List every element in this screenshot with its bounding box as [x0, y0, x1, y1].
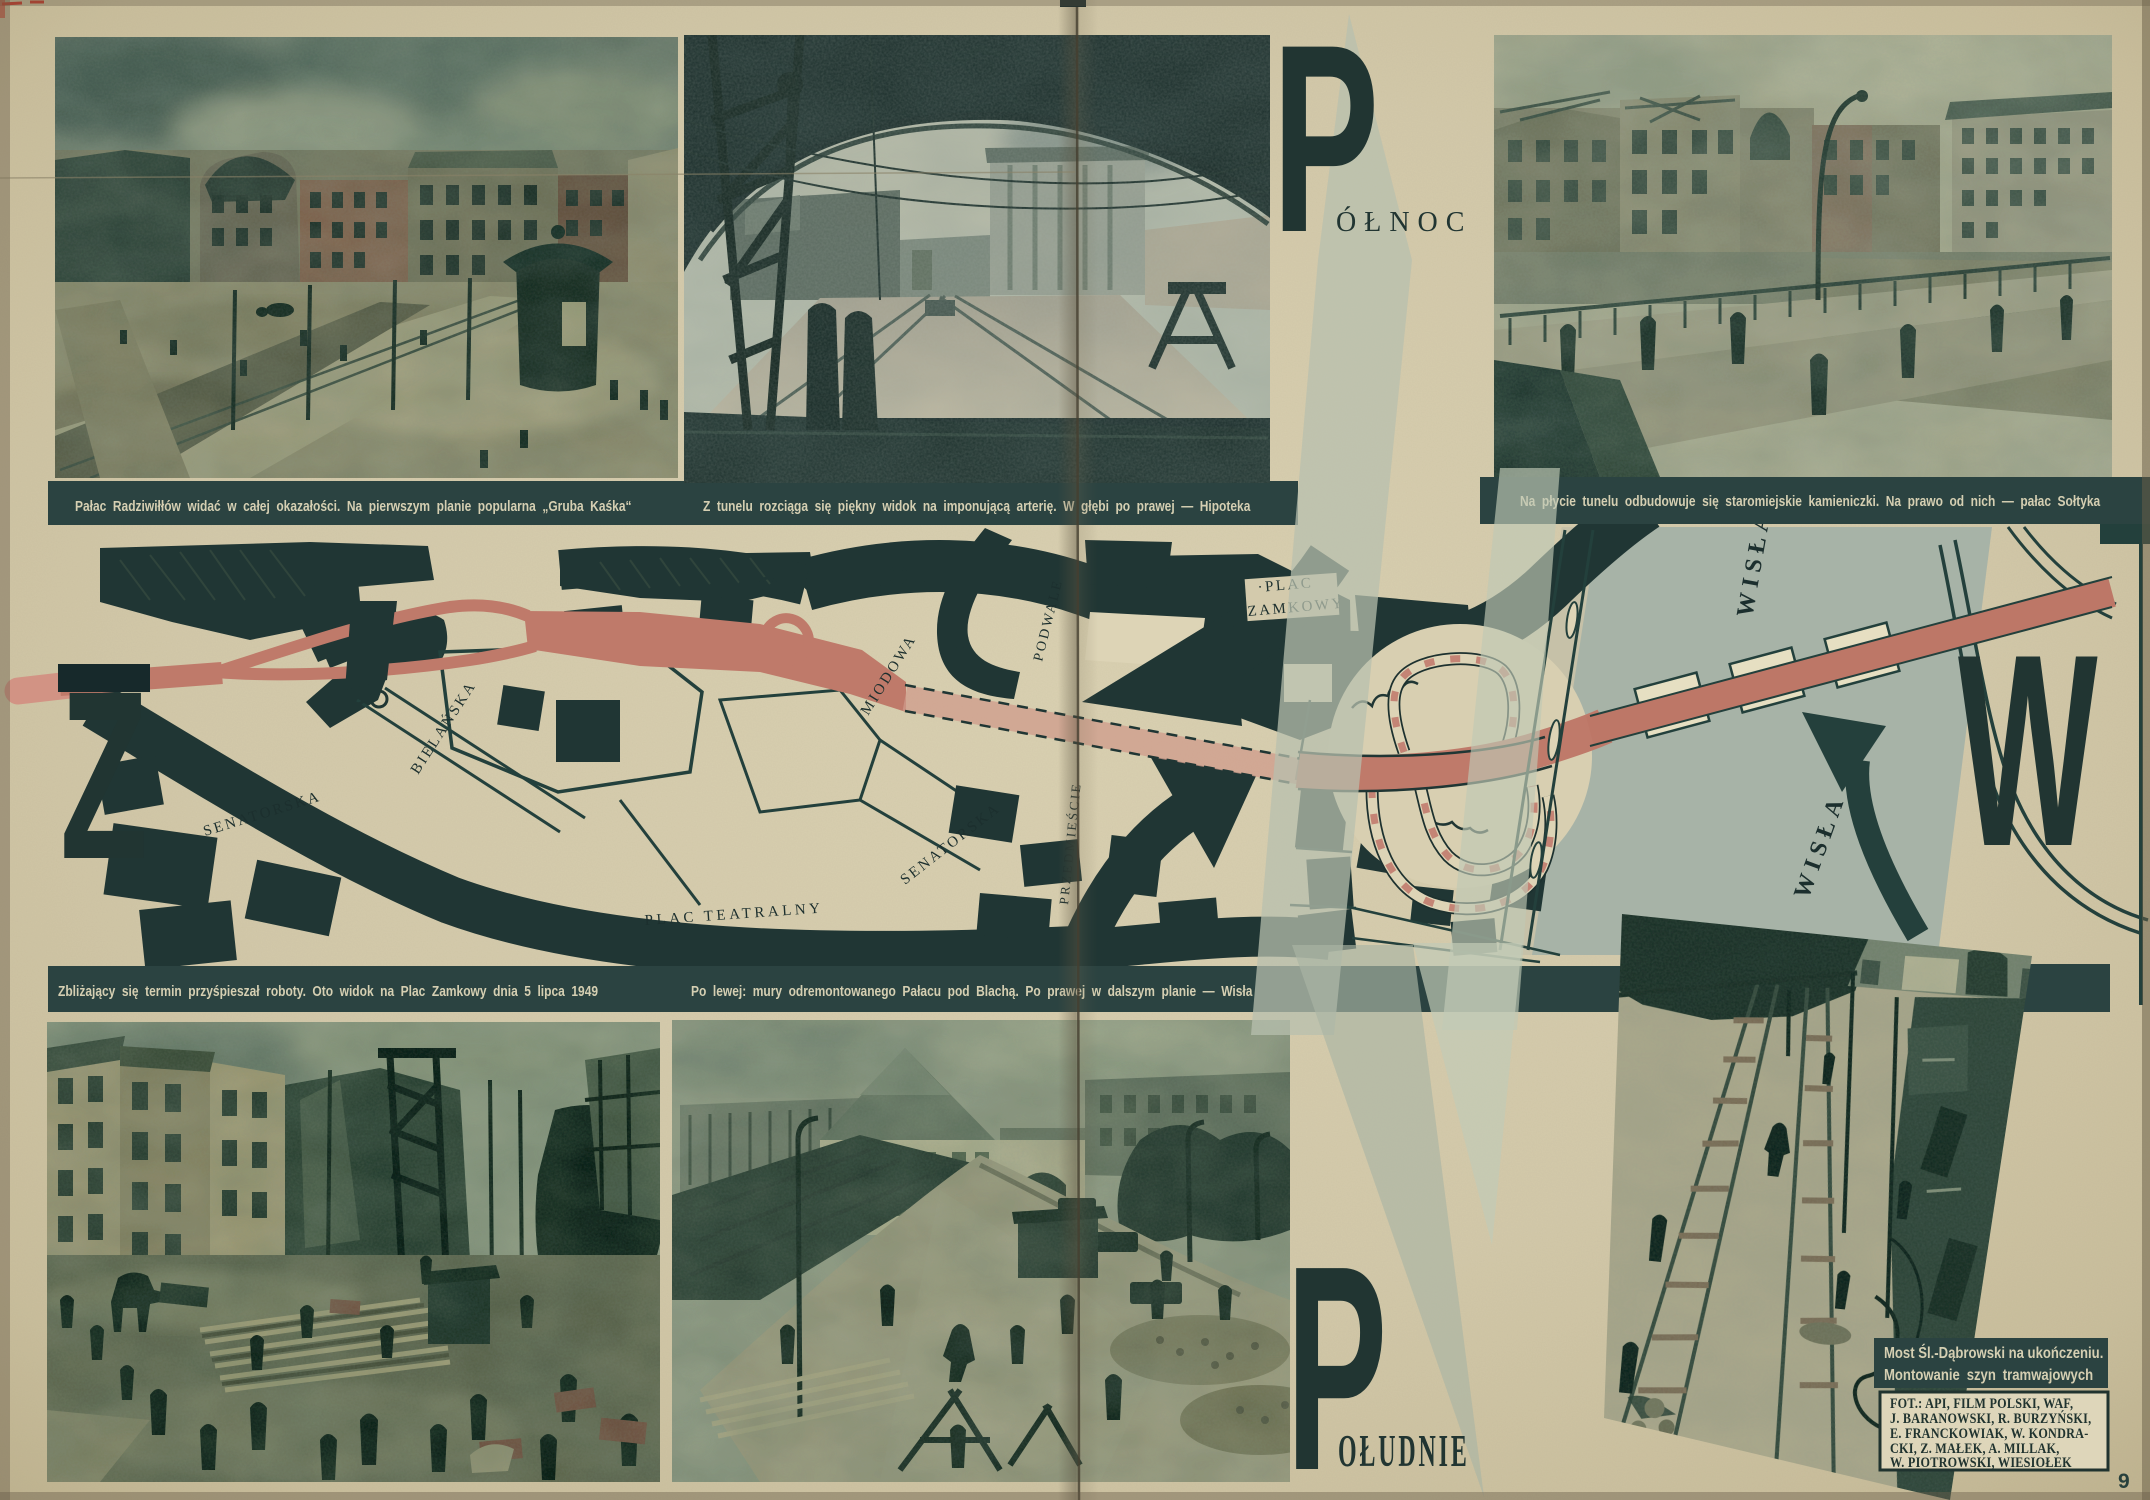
svg-text:Most Śl.-Dąbrowski na ukończen: Most Śl.-Dąbrowski na ukończeniu. — [1884, 1343, 2103, 1363]
svg-text:Na płycie tunelu odbudowuje si: Na płycie tunelu odbudowuje się staromie… — [1520, 493, 2101, 510]
svg-text:W: W — [1958, 597, 2098, 903]
svg-text:W. PIOTROWSKI, WIESIOŁEK: W. PIOTROWSKI, WIESIOŁEK — [1890, 1454, 2072, 1470]
svg-text:OŁUDNIE: OŁUDNIE — [1338, 1425, 1470, 1476]
svg-text:Montowanie szyn tramwajowych: Montowanie szyn tramwajowych — [1884, 1367, 2093, 1384]
svg-text:9: 9 — [2118, 1470, 2130, 1493]
svg-text:Zbliżający się termin przyśpie: Zbliżający się termin przyśpieszał robot… — [58, 983, 598, 1000]
svg-text:Po lewej: mury odremontowanego: Po lewej: mury odremontowanego Pałacu po… — [691, 983, 1253, 1000]
svg-text:ÓŁNOC: ÓŁNOC — [1336, 207, 1472, 238]
svg-text:Pałac Radziwiłłów widać w całe: Pałac Radziwiłłów widać w całej okazałoś… — [75, 498, 632, 515]
svg-text:Z: Z — [60, 641, 148, 909]
svg-text:FOT.: API, FILM POLSKI, WA: FOT.: API, FILM POLSKI, WAF, — [1890, 1395, 2073, 1411]
svg-text:Z tunelu rozciąga się piękny w: Z tunelu rozciąga się piękny widok na im… — [703, 498, 1251, 515]
svg-text:J. BARANOWSKI, R. BURZYŃSKI,: J. BARANOWSKI, R. BURZYŃSKI, — [1890, 1410, 2091, 1426]
svg-text:E. FRANCKOWIAK, W. KONDRA-: E. FRANCKOWIAK, W. KONDRA- — [1890, 1425, 2089, 1441]
svg-text:P: P — [1272, 0, 1379, 288]
